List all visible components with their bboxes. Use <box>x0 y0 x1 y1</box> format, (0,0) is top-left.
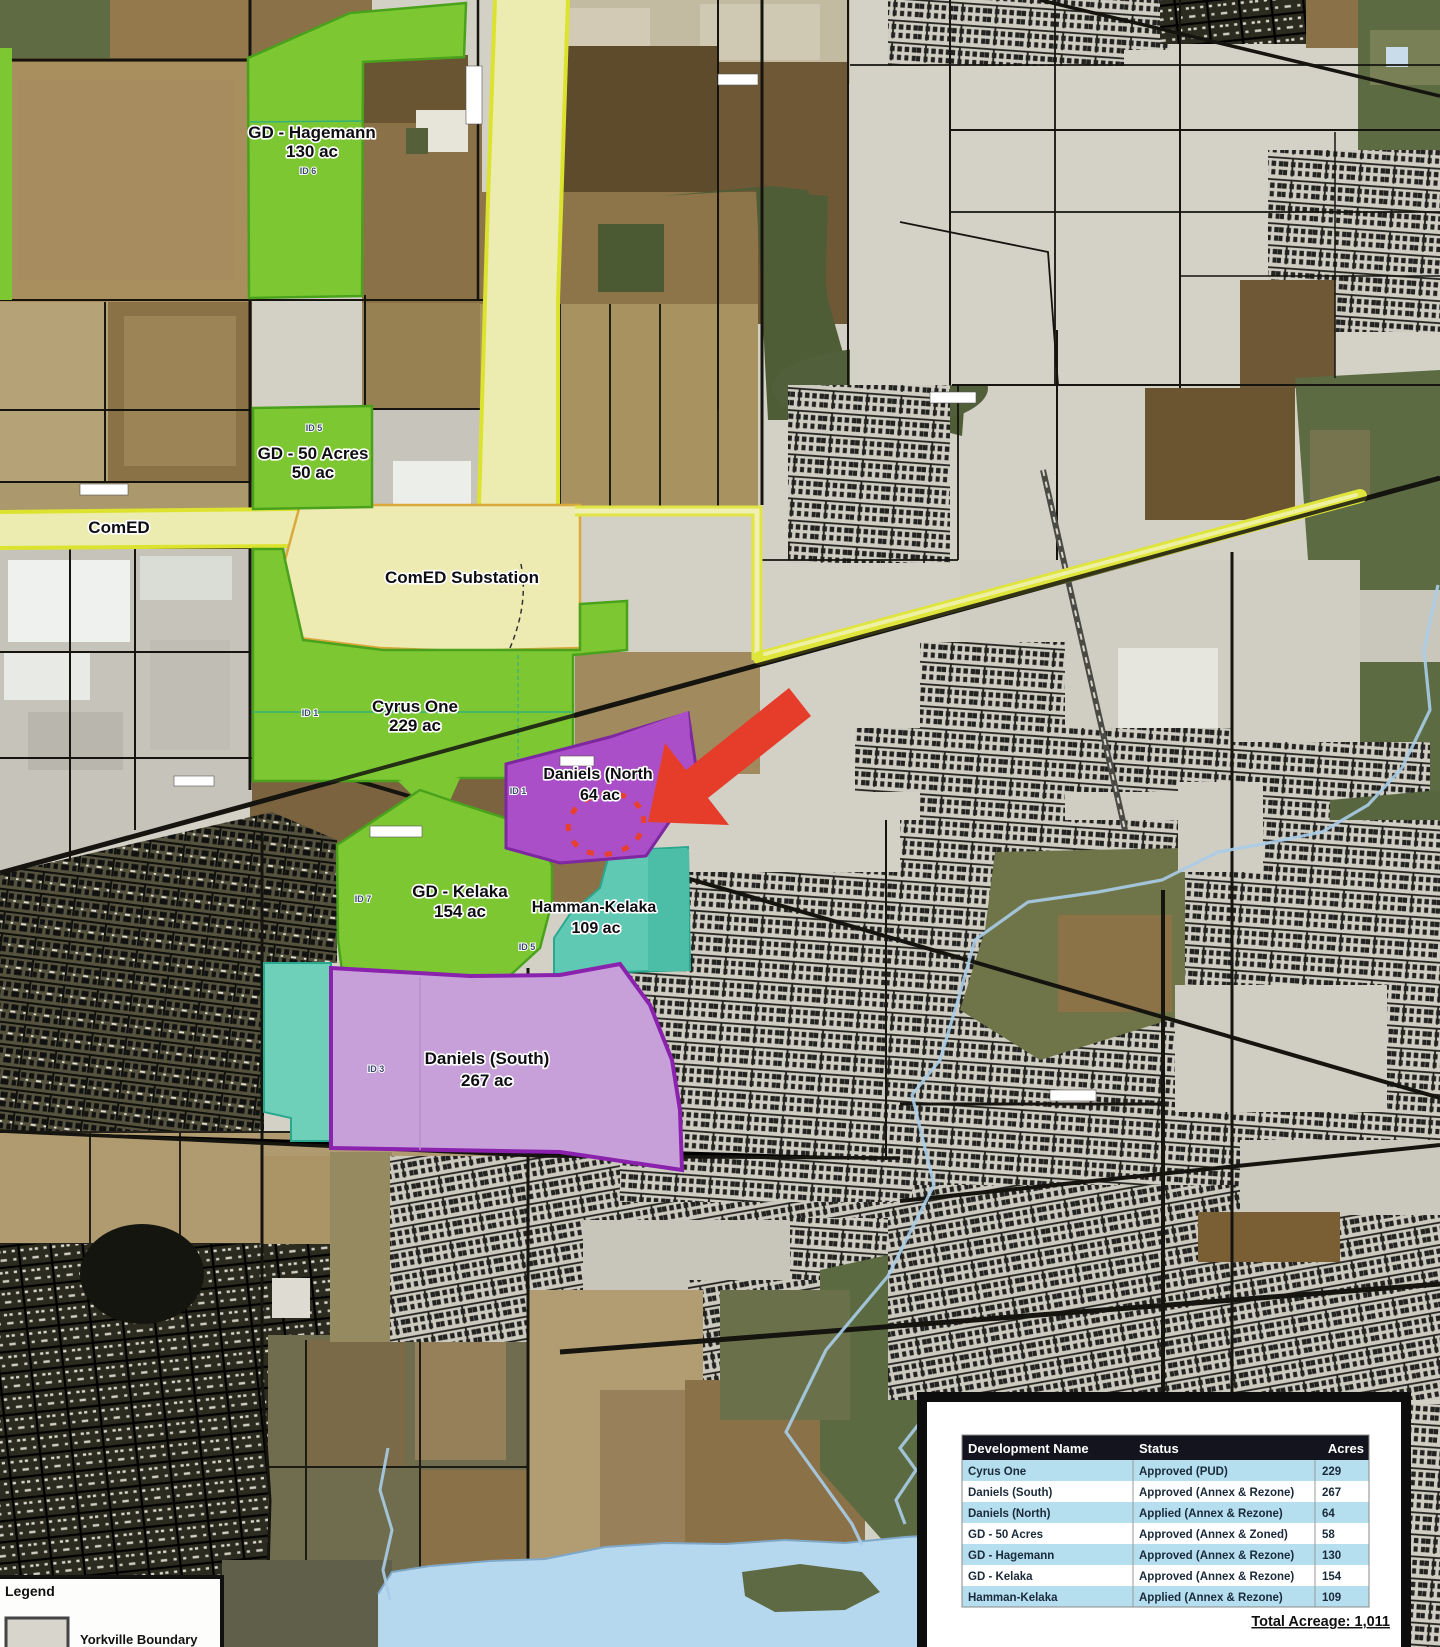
svg-text:Applied (Annex & Rezone): Applied (Annex & Rezone) <box>1139 1592 1283 1604</box>
svg-text:267 ac: 267 ac <box>461 1071 513 1090</box>
svg-text:ID 1: ID 1 <box>302 708 319 718</box>
svg-text:Daniels (North: Daniels (North <box>543 766 652 783</box>
svg-text:GD - 50 Acres: GD - 50 Acres <box>258 444 369 463</box>
svg-text:Development Name: Development Name <box>968 1441 1089 1456</box>
svg-text:Total Acreage: 1,011: Total Acreage: 1,011 <box>1251 1614 1390 1630</box>
svg-text:ID 6: ID 6 <box>300 166 317 176</box>
svg-text:ID 5: ID 5 <box>519 942 536 952</box>
svg-text:Approved (Annex & Rezone): Approved (Annex & Rezone) <box>1139 1571 1294 1583</box>
svg-text:154 ac: 154 ac <box>434 902 486 921</box>
svg-text:GD - Hagemann: GD - Hagemann <box>968 1550 1054 1562</box>
svg-text:ComED Substation: ComED Substation <box>385 568 539 587</box>
svg-text:130: 130 <box>1322 1550 1341 1562</box>
svg-text:109 ac: 109 ac <box>572 920 621 937</box>
svg-text:130 ac: 130 ac <box>286 142 338 161</box>
svg-text:Approved (Annex & Rezone): Approved (Annex & Rezone) <box>1139 1550 1294 1562</box>
svg-text:Status: Status <box>1139 1441 1179 1456</box>
svg-text:Hamman-Kelaka: Hamman-Kelaka <box>532 899 657 916</box>
svg-text:Cyrus One: Cyrus One <box>968 1466 1026 1478</box>
svg-text:64: 64 <box>1322 1508 1335 1520</box>
svg-text:GD - Kelaka: GD - Kelaka <box>968 1571 1033 1583</box>
svg-text:Cyrus One: Cyrus One <box>372 697 458 716</box>
svg-text:109: 109 <box>1322 1592 1341 1604</box>
svg-text:Approved (Annex & Zoned): Approved (Annex & Zoned) <box>1139 1529 1288 1541</box>
svg-text:GD - 50 Acres: GD - 50 Acres <box>968 1529 1043 1541</box>
svg-text:Applied (Annex & Rezone): Applied (Annex & Rezone) <box>1139 1508 1283 1520</box>
svg-text:229: 229 <box>1322 1466 1341 1478</box>
svg-text:58: 58 <box>1322 1529 1335 1541</box>
svg-text:267: 267 <box>1322 1487 1341 1499</box>
svg-text:GD - Kelaka: GD - Kelaka <box>412 882 508 901</box>
svg-text:GD - Hagemann: GD - Hagemann <box>248 123 376 142</box>
svg-text:Acres: Acres <box>1328 1441 1364 1456</box>
svg-text:ID 7: ID 7 <box>355 894 372 904</box>
svg-text:154: 154 <box>1322 1571 1342 1583</box>
svg-text:229 ac: 229 ac <box>389 716 441 735</box>
svg-text:Hamman-Kelaka: Hamman-Kelaka <box>968 1592 1058 1604</box>
svg-text:Yorkville Boundary: Yorkville Boundary <box>80 1632 198 1647</box>
svg-text:ID 5: ID 5 <box>306 423 323 433</box>
svg-text:Legend: Legend <box>5 1583 55 1599</box>
svg-text:ComED: ComED <box>88 518 149 537</box>
svg-text:ID 3: ID 3 <box>368 1064 385 1074</box>
svg-text:Approved (PUD): Approved (PUD) <box>1139 1466 1228 1478</box>
svg-text:50 ac: 50 ac <box>292 463 335 482</box>
svg-text:64 ac: 64 ac <box>580 787 620 804</box>
svg-text:Daniels (South): Daniels (South) <box>425 1049 550 1068</box>
svg-text:Approved (Annex & Rezone): Approved (Annex & Rezone) <box>1139 1487 1294 1499</box>
svg-text:Daniels (South): Daniels (South) <box>968 1487 1053 1499</box>
svg-text:ID 1: ID 1 <box>510 786 527 796</box>
svg-text:Daniels (North): Daniels (North) <box>968 1508 1051 1520</box>
